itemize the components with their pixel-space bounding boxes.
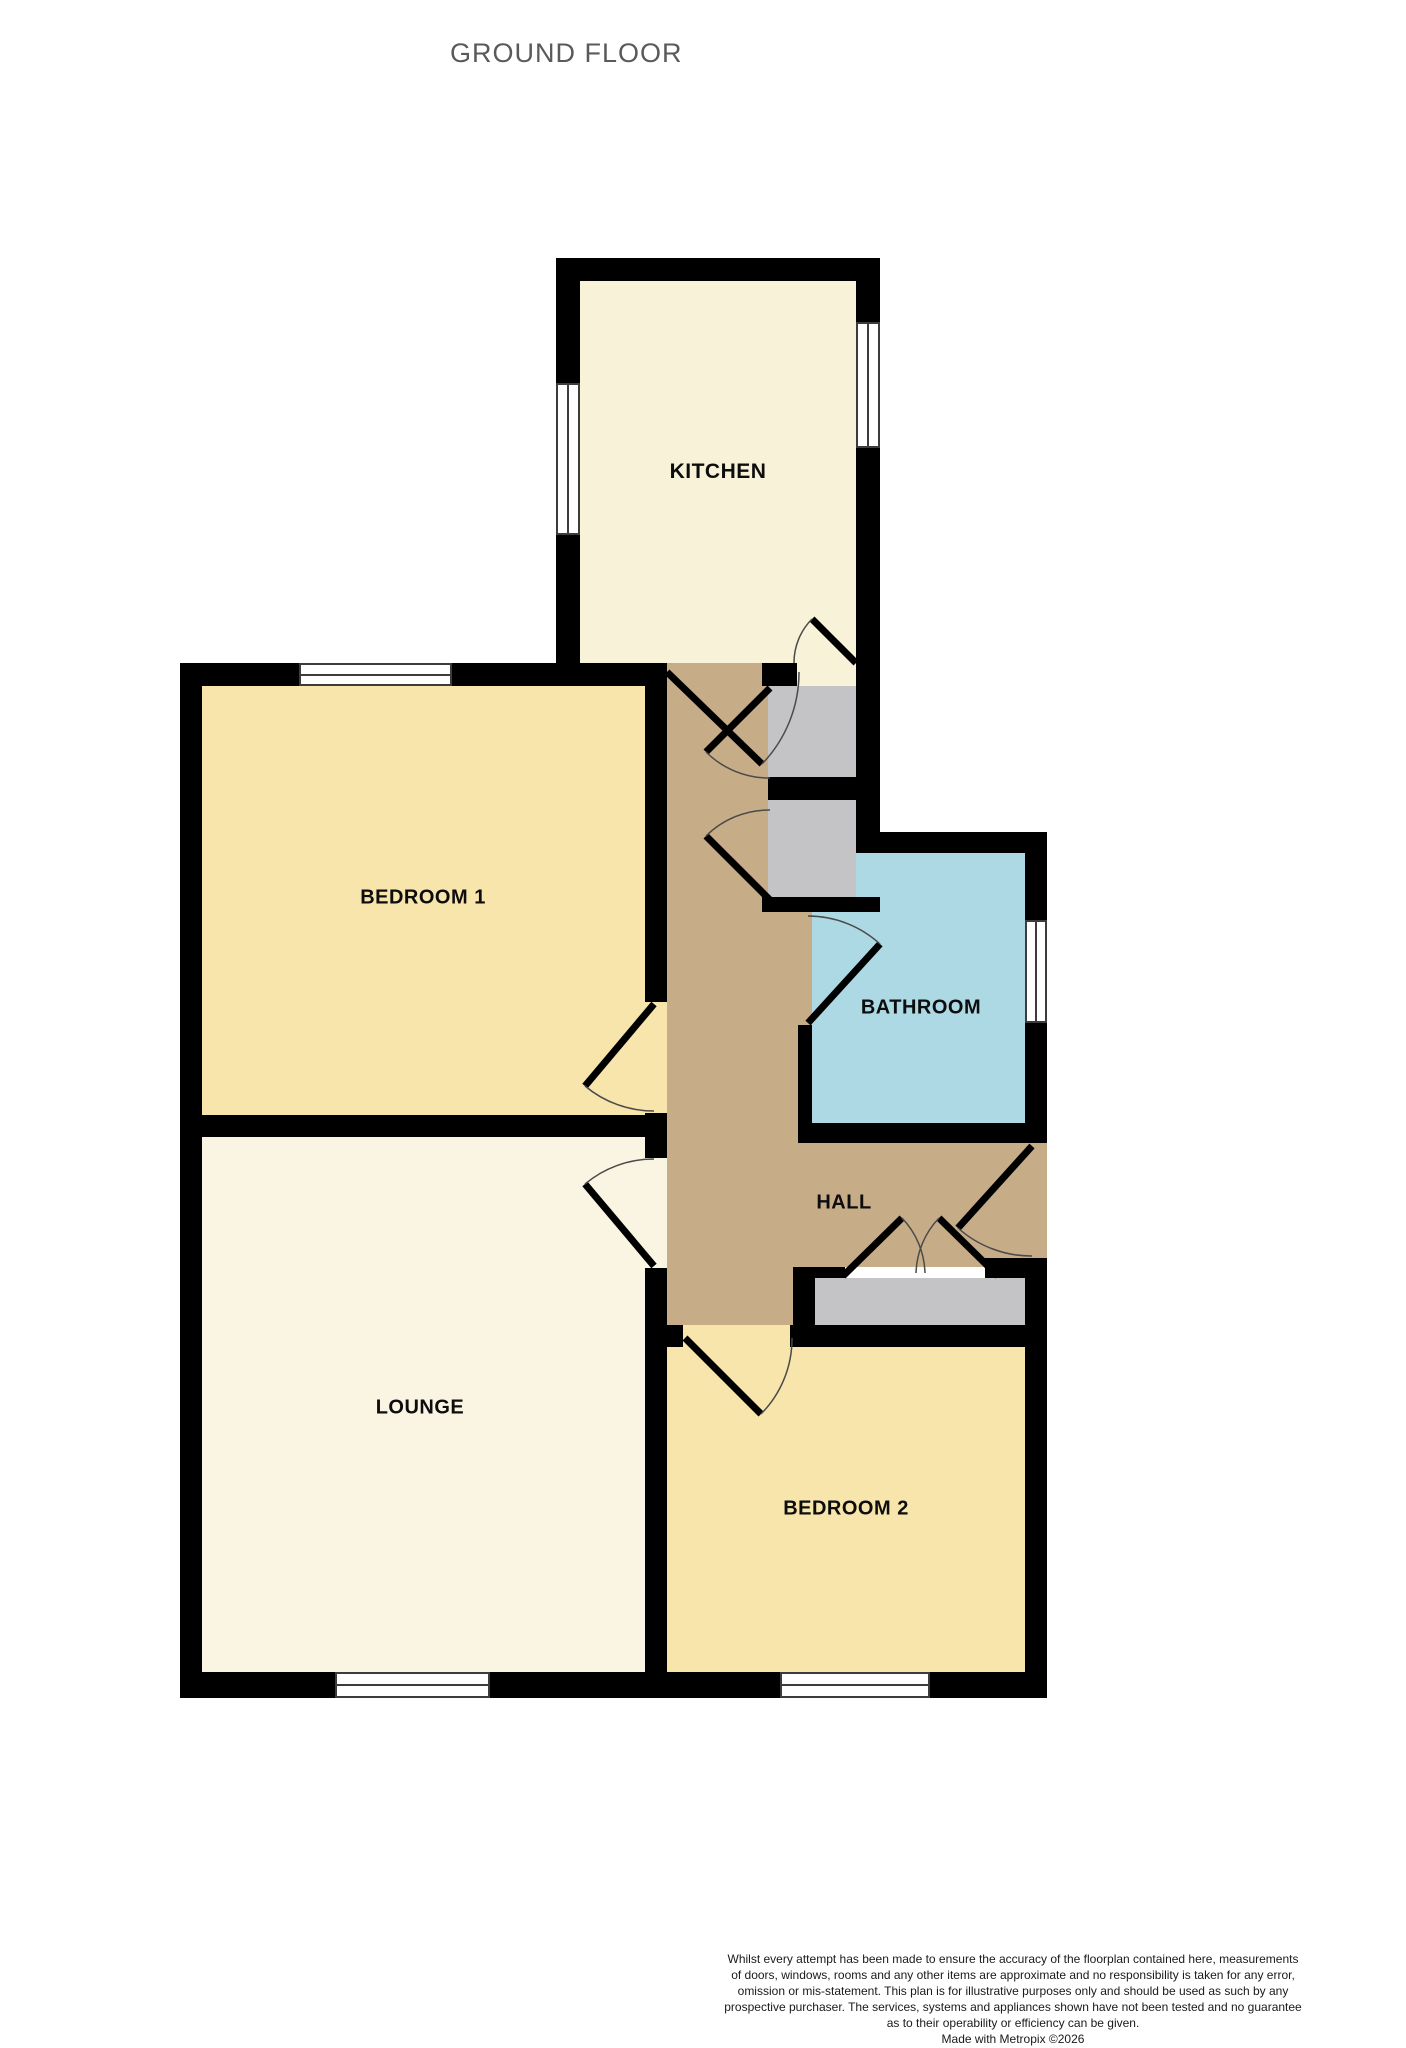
lounge-label: LOUNGE bbox=[376, 1397, 465, 1420]
door-leaf-bedroom2 bbox=[685, 1338, 761, 1414]
door-leaf-kitchen-pantry bbox=[812, 619, 856, 663]
door-leaf-wardrobe-left bbox=[843, 1218, 902, 1276]
door-leaf-bedroom1 bbox=[585, 1004, 654, 1086]
bedroom1-label: BEDROOM 1 bbox=[360, 887, 486, 910]
disclaimer-line: prospective purchaser. The services, sys… bbox=[613, 1999, 1406, 2015]
hall-label: HALL bbox=[816, 1192, 871, 1215]
door-arc-bedroom1 bbox=[585, 1086, 654, 1111]
door-symbols-layer bbox=[0, 0, 1406, 2048]
door-leaf-front-entrance bbox=[958, 1146, 1032, 1228]
floorplan-page: GROUND FLOOR bbox=[0, 0, 1406, 2048]
bathroom-label: BATHROOM bbox=[861, 997, 981, 1020]
disclaimer-line: Whilst every attempt has been made to en… bbox=[613, 1951, 1406, 1967]
disclaimer-line: omission or mis-statement. This plan is … bbox=[613, 1983, 1406, 1999]
door-leaf-lounge bbox=[585, 1184, 654, 1266]
door-leaf-cupboard2 bbox=[706, 836, 770, 900]
door-arc-lounge bbox=[585, 1159, 654, 1184]
disclaimer-line: of doors, windows, rooms and any other i… bbox=[613, 1967, 1406, 1983]
disclaimer-text: Whilst every attempt has been made to en… bbox=[613, 1951, 1406, 2047]
door-leaf-kitchen-hall bbox=[667, 672, 762, 764]
metropix-credit: Made with Metropix ©2026 bbox=[613, 2031, 1406, 2047]
bedroom2-label: BEDROOM 2 bbox=[783, 1498, 909, 1521]
door-arc-kitchen-pantry bbox=[794, 619, 812, 663]
door-arc-bedroom2 bbox=[761, 1338, 792, 1414]
door-arc-cupboard2 bbox=[706, 810, 770, 836]
kitchen-label: KITCHEN bbox=[670, 460, 767, 484]
disclaimer-line: as to their operability or efficiency ca… bbox=[613, 2015, 1406, 2031]
door-arc-bathroom bbox=[808, 916, 880, 944]
